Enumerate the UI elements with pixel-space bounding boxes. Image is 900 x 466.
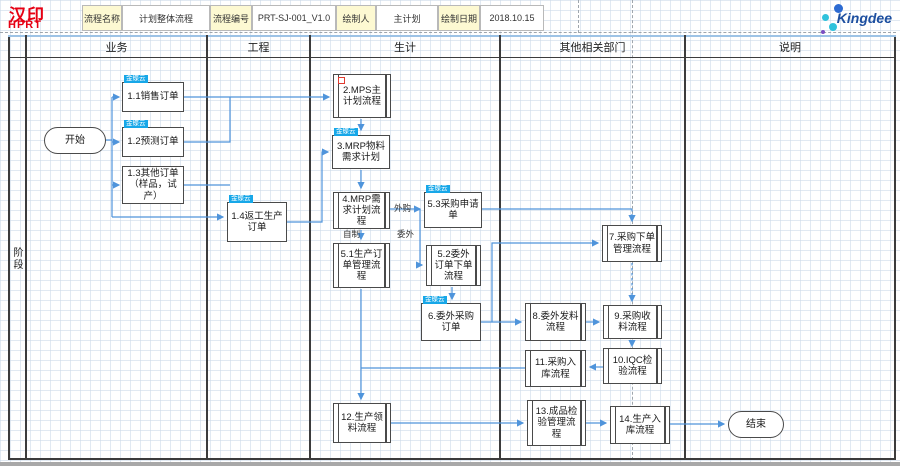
kingdee-cloud-badge: 金蝶云 bbox=[229, 195, 253, 203]
date-label: 绘制日期 bbox=[438, 5, 480, 31]
hprt-logo-en: HPRT bbox=[8, 19, 42, 31]
node-purchase-request[interactable]: 金蝶云 5.3采购申请单 bbox=[424, 192, 482, 228]
kingdee-cloud-badge: 金蝶云 bbox=[124, 75, 148, 83]
lane-title-business: 业务 bbox=[27, 36, 206, 57]
process-number-value: PRT-SJ-001_V1.0 bbox=[252, 5, 336, 31]
node-mps-master-plan[interactable]: 2.MPS主计划流程 bbox=[333, 74, 391, 118]
lane-title-underline bbox=[8, 57, 896, 58]
kingdee-cloud-badge: 金蝶云 bbox=[426, 185, 450, 193]
kingdee-logo-dot bbox=[821, 30, 825, 34]
comment-marker-icon bbox=[338, 77, 345, 84]
node-purchase-receiving[interactable]: 9.采购收料流程 bbox=[603, 305, 662, 339]
node-purchase-order-mgmt[interactable]: 7.采购下单管理流程 bbox=[602, 225, 662, 262]
node-production-order-mgmt[interactable]: 5.1生产订单管理流程 bbox=[333, 243, 390, 288]
lane-divider bbox=[684, 35, 686, 460]
node-other-order[interactable]: 1.3其他订单（样品，试产） bbox=[122, 166, 184, 204]
process-name-value: 计划整体流程 bbox=[122, 5, 210, 31]
lane-title-engineering: 工程 bbox=[208, 36, 309, 57]
page-break-line bbox=[0, 32, 896, 33]
author-value: 主计划 bbox=[376, 5, 438, 31]
edge-label-self-made: 自制 bbox=[343, 228, 360, 240]
lane-title-other-depts: 其他相关部门 bbox=[501, 36, 684, 57]
lane-divider bbox=[206, 35, 208, 460]
flowchart-page: 汉印 HPRT 流程名称 计划整体流程 流程编号 PRT-SJ-001_V1.0… bbox=[0, 0, 900, 466]
edge-label-outsourced-purchase: 外购 bbox=[394, 202, 411, 214]
kingdee-cloud-badge: 金蝶云 bbox=[124, 120, 148, 128]
node-mrp-material-plan[interactable]: 金蝶云 3.MRP物料需求计划 bbox=[332, 135, 390, 169]
node-sales-order[interactable]: 金蝶云 1.1销售订单 bbox=[122, 82, 184, 112]
author-label: 绘制人 bbox=[336, 5, 376, 31]
phase-sidebar-label: 阶段 bbox=[8, 58, 25, 460]
lane-divider bbox=[25, 35, 27, 460]
kingdee-cloud-badge: 金蝶云 bbox=[423, 296, 447, 304]
kingdee-logo: Kingdee bbox=[796, 4, 892, 32]
node-outsource-issue-material[interactable]: 8.委外发料流程 bbox=[525, 303, 586, 341]
node-mrp-demand-plan[interactable]: 4.MRP需求计划流程 bbox=[333, 192, 390, 229]
node-forecast-order[interactable]: 金蝶云 1.2预测订单 bbox=[122, 127, 184, 157]
node-iqc-inspection[interactable]: 10.IQC检验流程 bbox=[603, 348, 662, 384]
edge-label-outsourced: 委外 bbox=[397, 228, 414, 240]
kingdee-logo-text: Kingdee bbox=[837, 10, 892, 26]
node-finished-goods-inspection[interactable]: 13.成品检验管理流程 bbox=[527, 400, 586, 446]
end-node[interactable]: 结束 bbox=[728, 411, 784, 438]
lane-title-planning: 生计 bbox=[311, 36, 499, 57]
lane-divider bbox=[309, 35, 311, 460]
start-node[interactable]: 开始 bbox=[44, 127, 106, 154]
page-break-line bbox=[578, 0, 579, 33]
kingdee-cloud-badge: 金蝶云 bbox=[334, 128, 358, 136]
process-number-label: 流程编号 bbox=[210, 5, 252, 31]
lane-divider bbox=[499, 35, 501, 460]
node-rework-order[interactable]: 金蝶云 1.4返工生产订单 bbox=[227, 202, 287, 242]
node-outsource-order[interactable]: 5.2委外订单下单流程 bbox=[426, 245, 481, 286]
node-purchase-warehousing[interactable]: 11.采购入库流程 bbox=[525, 350, 586, 387]
node-production-picking[interactable]: 12.生产领料流程 bbox=[333, 403, 391, 443]
process-name-label: 流程名称 bbox=[82, 5, 122, 31]
date-value: 2018.10.15 bbox=[480, 5, 544, 31]
node-outsource-purchase-order[interactable]: 金蝶云 6.委外采购订单 bbox=[421, 303, 481, 341]
node-production-warehousing[interactable]: 14.生产入库流程 bbox=[610, 406, 670, 444]
kingdee-logo-dot bbox=[822, 14, 829, 21]
lane-title-notes: 说明 bbox=[686, 36, 894, 57]
